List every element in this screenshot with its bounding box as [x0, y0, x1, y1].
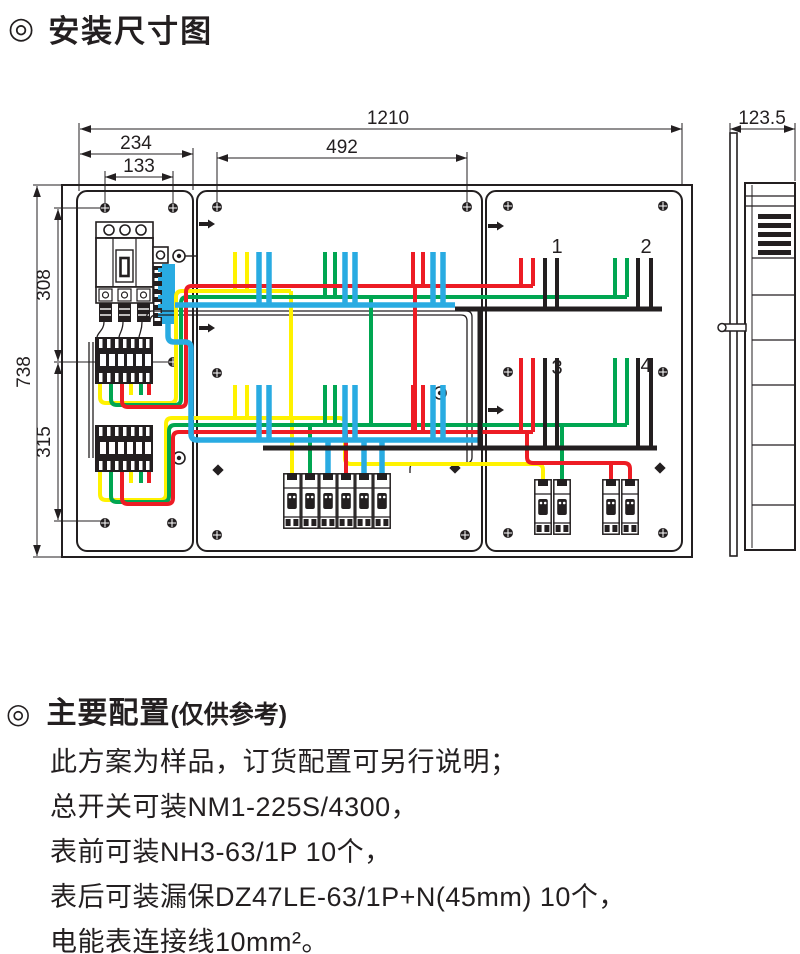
dim-left-plate-width: 234 — [120, 133, 152, 154]
config-line-2: 总开关可装NM1-225S/4300， — [50, 785, 796, 830]
neutral-comb-connector — [153, 264, 175, 326]
configuration-heading-note: (仅供参考) — [170, 695, 287, 731]
dim-left-holes-span: 133 — [123, 156, 155, 177]
meter-label-2: 2 — [640, 236, 651, 258]
configuration-heading: ◎ 主要配置 (仅供参考) — [6, 688, 796, 732]
configuration-heading-text: 主要配置 — [46, 688, 170, 732]
meter-label-3: 3 — [551, 357, 562, 379]
dim-middle-holes-span: 492 — [326, 137, 358, 158]
meter-label-1: 1 — [551, 236, 562, 258]
enclosure-side-view — [718, 133, 795, 556]
dim-lower-span: 315 — [34, 426, 55, 458]
configuration-lines: 此方案为样品，订货配置可另行说明； 总开关可装NM1-225S/4300， 表前… — [6, 740, 796, 954]
dim-upper-span: 308 — [34, 269, 55, 301]
installation-dimension-diagram: 1210 234 133 492 123.5 738 308 315 — [0, 0, 800, 640]
terminal-block-lower — [95, 425, 153, 472]
config-line-1: 此方案为样品，订货配置可另行说明； — [50, 740, 796, 785]
door-latch — [718, 324, 746, 332]
catalog-page: ◎ 安装尺寸图 — [0, 0, 800, 954]
main-configuration-section: ◎ 主要配置 (仅供参考) 此方案为样品，订货配置可另行说明； 总开关可装NM1… — [6, 688, 796, 954]
dim-total-height: 738 — [14, 356, 35, 388]
config-line-3: 表前可装NH3-63/1P 10个， — [50, 830, 796, 875]
dim-depth: 123.5 — [738, 108, 786, 129]
config-line-5: 电能表连接线10mm²。 — [50, 920, 796, 954]
dim-total-width: 1210 — [367, 108, 409, 129]
terminal-block-upper — [95, 337, 153, 384]
config-line-4: 表后可装漏保DZ47LE-63/1P+N(45mm) 10个， — [50, 875, 796, 920]
meter-label-4: 4 — [640, 355, 651, 377]
heading-bullet-icon: ◎ — [6, 696, 30, 732]
